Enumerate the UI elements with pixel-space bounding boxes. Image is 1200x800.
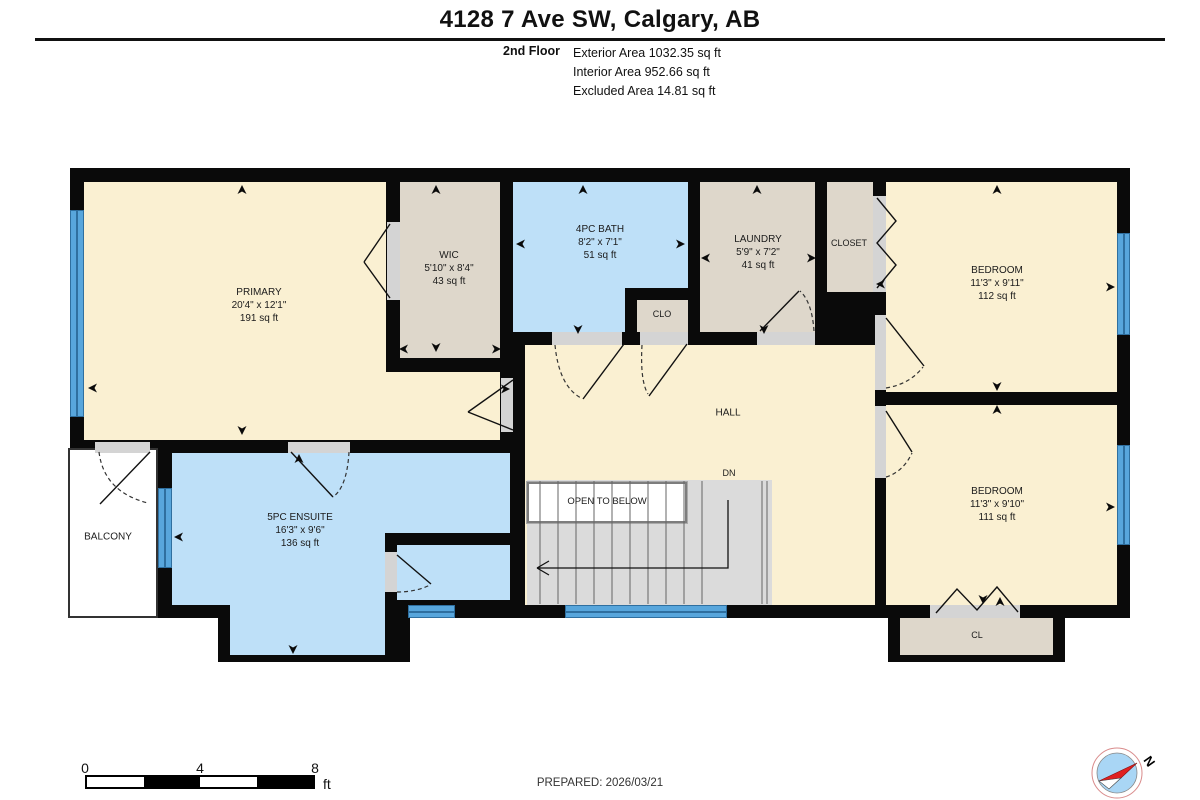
window-bedroom-1 [1117,233,1130,335]
window-ensuite [158,488,172,568]
room-label-balcony: BALCONY [84,532,132,545]
room-label-hall: HALL [715,408,740,421]
excluded-area: Excluded Area 14.81 sq ft [573,82,721,101]
door-sill-cl [930,605,1020,618]
room-label-cl: CL [971,630,983,642]
stairs-dn-label: DN [723,468,736,480]
floor-label: 2nd Floor [503,44,560,58]
door-sill-clo [640,332,688,345]
door-sill-primary-hall [501,378,513,432]
door-sill-wc [385,552,397,592]
door-sill-bedroom-2 [875,406,886,478]
window-stairs [565,605,727,618]
scale-tick-labels: 0 4 8 [85,760,315,775]
floor-plan-page: 4128 7 Ave SW, Calgary, AB 2nd Floor Ext… [0,0,1200,800]
scale-tick-4: 4 [196,760,204,776]
header-divider [35,38,1165,41]
window-bedroom-2 [1117,445,1130,545]
door-sill-bath [552,332,622,345]
room-ensuite-a [172,453,510,533]
area-summary: Exterior Area 1032.35 sq ft Interior Are… [573,44,721,101]
room-label-primary: PRIMARY20'4" x 12'1"191 sq ft [232,287,287,325]
scale-bar-segments [85,775,315,789]
door-sill-wic [387,222,400,300]
compass-icon: N [1090,746,1160,800]
door-sill-ensuite [288,442,350,453]
scale-unit-label: ft [323,776,331,792]
page-title: 4128 7 Ave SW, Calgary, AB [0,6,1200,34]
exterior-area: Exterior Area 1032.35 sq ft [573,44,721,63]
room-label-wic: WIC5'10" x 8'4"43 sq ft [424,250,473,288]
door-sill-closet [873,196,886,292]
room-label-closet: CLOSET [831,238,867,250]
scale-bar: 0 4 8 ft [85,760,315,789]
window-wc [408,605,455,618]
room-primary-passage [386,372,500,440]
wall-clo-left [625,288,637,332]
open-to-below-label: OPEN TO BELOW [567,496,646,508]
room-label-bedroom-2: BEDROOM11'3" x 9'10"111 sq ft [970,486,1024,524]
compass-n-label: N [1141,753,1159,769]
open-to-below-box: OPEN TO BELOW [527,482,687,523]
scale-tick-0: 0 [81,760,89,776]
room-label-ensuite: 5PC ENSUITE16'3" x 9'6"136 sq ft [267,512,333,550]
room-label-laundry: LAUNDRY5'9" x 7'2"41 sq ft [734,234,782,272]
room-ensuite-c [230,600,385,655]
door-sill-bedroom-1 [875,315,886,390]
window-primary-left [70,210,84,417]
prepared-date: PREPARED: 2026/03/21 [537,777,663,789]
interior-area: Interior Area 952.66 sq ft [573,63,721,82]
scale-tick-8: 8 [311,760,319,776]
room-label-bath: 4PC BATH8'2" x 7'1"51 sq ft [576,224,624,262]
room-ensuite-wc [397,545,510,600]
room-label-bedroom-1: BEDROOM11'3" x 9'11"112 sq ft [970,265,1023,303]
room-label-clo: CLO [653,309,672,321]
room-closet [827,182,873,292]
door-sill-balcony [95,442,150,453]
door-sill-laundry [757,332,815,345]
